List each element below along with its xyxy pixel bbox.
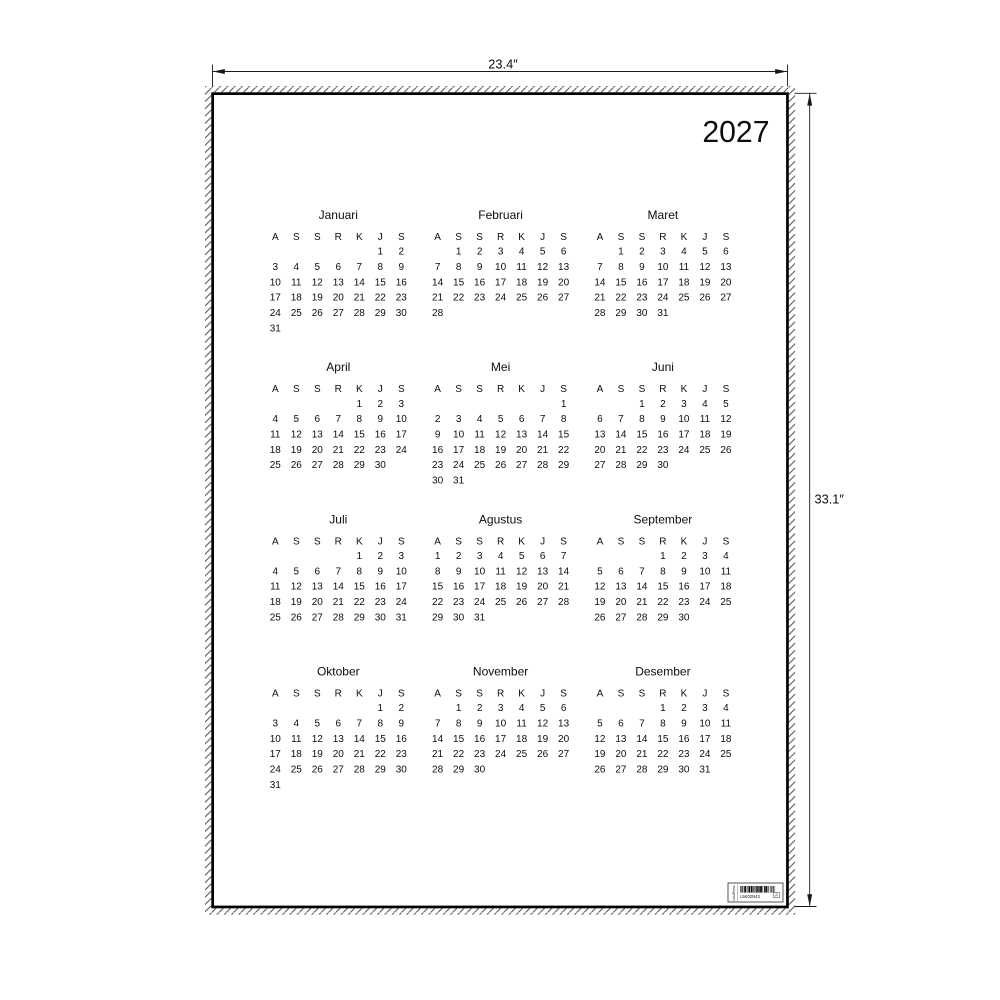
svg-text:282930: 282930 bbox=[432, 765, 486, 776]
svg-text:Juni: Juni bbox=[652, 360, 674, 374]
svg-text:23.4″: 23.4″ bbox=[488, 56, 518, 71]
svg-text:33.1″: 33.1″ bbox=[815, 492, 845, 507]
svg-text:Juli: Juli bbox=[329, 512, 347, 526]
svg-text:293031: 293031 bbox=[432, 612, 486, 623]
svg-text:April: April bbox=[326, 360, 350, 374]
svg-text:28: 28 bbox=[432, 308, 444, 319]
svg-text:1: 1 bbox=[561, 399, 567, 410]
svg-text:LuluPress: LuluPress bbox=[732, 885, 736, 900]
svg-text:Mei: Mei bbox=[491, 360, 510, 374]
svg-text:September: September bbox=[634, 512, 693, 526]
svg-text:Oktober: Oktober bbox=[317, 665, 360, 679]
svg-text:November: November bbox=[473, 665, 528, 679]
svg-text:L5K02N43: L5K02N43 bbox=[740, 894, 760, 899]
svg-text:Maret: Maret bbox=[648, 208, 679, 222]
svg-text:31: 31 bbox=[270, 323, 282, 334]
svg-text:31: 31 bbox=[270, 780, 282, 791]
svg-text:A: A bbox=[775, 893, 778, 898]
svg-text:Februari: Februari bbox=[478, 208, 523, 222]
svg-text:Januari: Januari bbox=[319, 208, 358, 222]
svg-text:Desember: Desember bbox=[635, 665, 690, 679]
svg-text:2027: 2027 bbox=[702, 116, 769, 149]
svg-text:Agustus: Agustus bbox=[479, 512, 522, 526]
